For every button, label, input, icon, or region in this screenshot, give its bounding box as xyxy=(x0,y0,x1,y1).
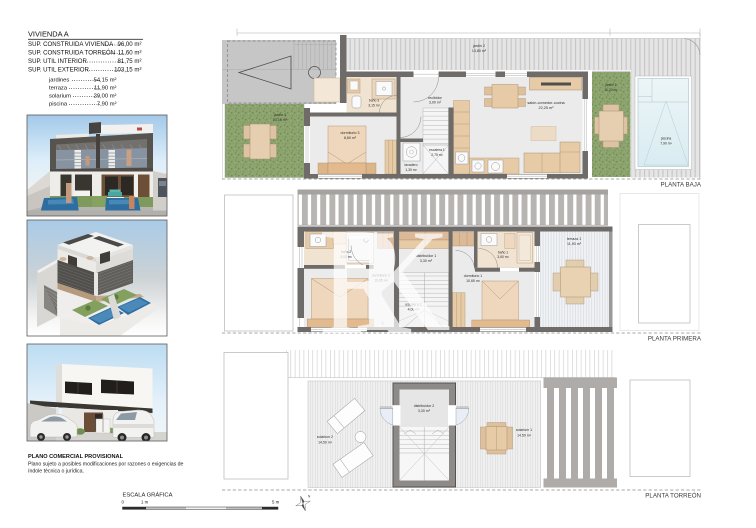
svg-text:1,30 m²: 1,30 m² xyxy=(405,168,417,172)
svg-text:solarium 2: solarium 2 xyxy=(317,435,333,439)
svg-text:7,90 m²: 7,90 m² xyxy=(97,102,117,108)
svg-text:lavadero: lavadero xyxy=(404,163,417,167)
svg-text:dormitorio 1: dormitorio 1 xyxy=(464,274,483,278)
svg-text:índole técnica o jurídica.: índole técnica o jurídica. xyxy=(28,469,84,475)
svg-text:11,60 m²: 11,60 m² xyxy=(118,50,142,57)
svg-text:solarium: solarium xyxy=(49,94,71,100)
svg-text:96,00 m²: 96,00 m² xyxy=(117,41,141,48)
svg-text:terraza 1: terraza 1 xyxy=(567,237,581,241)
svg-text:PLANTA BAJA: PLANTA BAJA xyxy=(661,182,702,189)
svg-text:PLANTA TORREÓN: PLANTA TORREÓN xyxy=(645,493,701,500)
svg-text:SUP. UTIL EXTERIOR: SUP. UTIL EXTERIOR xyxy=(28,67,90,74)
svg-text:103,15 m²: 103,15 m² xyxy=(114,67,141,74)
svg-text:distribuidor 2: distribuidor 2 xyxy=(414,404,435,408)
svg-text:jardines: jardines xyxy=(48,78,69,84)
svg-text:baño 1: baño 1 xyxy=(498,251,508,255)
svg-text:piscina: piscina xyxy=(661,137,672,141)
svg-text:SUP. CONSTRUIDA VIVIENDA: SUP. CONSTRUIDA VIVIENDA xyxy=(28,41,114,48)
svg-text:jardín 2: jardín 2 xyxy=(472,44,485,48)
svg-text:Plano sujeto a posibles modifi: Plano sujeto a posibles modificaciones p… xyxy=(28,462,184,468)
svg-text:3,60 m²: 3,60 m² xyxy=(497,255,509,259)
svg-text:11,20 m²: 11,20 m² xyxy=(604,88,618,92)
svg-text:5 m: 5 m xyxy=(272,500,280,505)
svg-text:81,75 m²: 81,75 m² xyxy=(117,58,141,65)
svg-text:jardín 3: jardín 3 xyxy=(273,113,286,117)
svg-text:11,90 m²: 11,90 m² xyxy=(567,242,582,246)
svg-text:3,15 m²: 3,15 m² xyxy=(368,103,380,107)
svg-text:terraza: terraza xyxy=(49,86,68,92)
svg-text:7,90 m²: 7,90 m² xyxy=(660,142,672,146)
svg-text:11,90 m²: 11,90 m² xyxy=(94,86,117,92)
svg-text:14,50 m²: 14,50 m² xyxy=(318,441,333,445)
svg-text:N: N xyxy=(308,495,311,499)
svg-text:23,10 m²: 23,10 m² xyxy=(273,118,288,122)
svg-text:piscina: piscina xyxy=(49,102,68,108)
svg-text:13,80 m²: 13,80 m² xyxy=(472,49,487,53)
svg-text:14,50 m²: 14,50 m² xyxy=(517,434,532,438)
svg-text:VIVIENDA A: VIVIENDA A xyxy=(28,30,69,39)
svg-text:29,00 m²: 29,00 m² xyxy=(94,94,117,100)
svg-text:ESCALA GRÁFICA: ESCALA GRÁFICA xyxy=(123,492,173,499)
svg-text:baño 3: baño 3 xyxy=(369,99,379,103)
svg-text:salón-comedor-cocina: salón-comedor-cocina xyxy=(527,101,565,105)
svg-text:PLANTA PRIMERA: PLANTA PRIMERA xyxy=(648,336,702,343)
svg-text:dormitorio 3: dormitorio 3 xyxy=(341,131,360,135)
svg-text:2,75 m²: 2,75 m² xyxy=(431,153,443,157)
svg-text:recibidor: recibidor xyxy=(428,96,443,100)
svg-text:jardín 1: jardín 1 xyxy=(604,83,616,87)
svg-text:10,65 m²: 10,65 m² xyxy=(466,279,481,283)
svg-text:SUP. CONSTRUIDA TORREÓN: SUP. CONSTRUIDA TORREÓN xyxy=(28,50,115,57)
svg-text:3,30 m²: 3,30 m² xyxy=(418,409,431,413)
svg-text:PLANO COMERCIAL PROVISIONAL: PLANO COMERCIAL PROVISIONAL xyxy=(28,454,124,460)
svg-text:22,25 m²: 22,25 m² xyxy=(539,106,555,110)
svg-text:3,00 m²: 3,00 m² xyxy=(429,101,442,105)
svg-text:8,60 m²: 8,60 m² xyxy=(344,136,357,140)
svg-text:escalera 1: escalera 1 xyxy=(429,148,445,152)
svg-text:0: 0 xyxy=(122,500,125,505)
svg-text:SUP. UTIL INTERIOR: SUP. UTIL INTERIOR xyxy=(28,58,88,65)
svg-text:1 m: 1 m xyxy=(141,500,149,505)
svg-text:solarium 1: solarium 1 xyxy=(516,428,532,432)
svg-text:K: K xyxy=(354,199,451,362)
svg-text:54,15 m²: 54,15 m² xyxy=(94,78,117,84)
